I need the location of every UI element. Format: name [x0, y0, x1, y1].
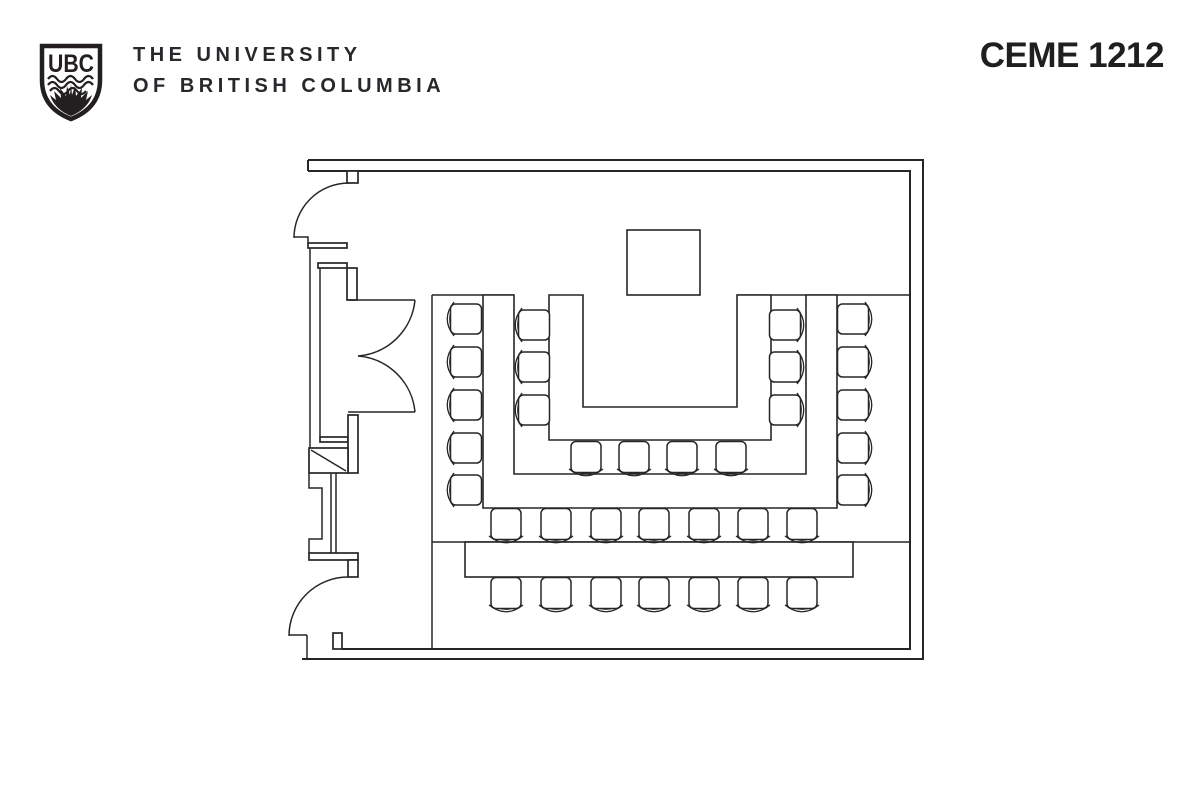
furniture-layer	[447, 230, 872, 612]
door-pier	[347, 268, 357, 300]
chair-left-outer-column	[447, 302, 481, 336]
chair-seat	[519, 310, 550, 340]
chair-back-row	[539, 578, 573, 612]
chair-middle-row	[637, 509, 671, 543]
chair-seat	[838, 433, 869, 463]
chair-back-row	[785, 578, 819, 612]
alcove-walls	[310, 248, 320, 448]
door-pier	[348, 560, 358, 577]
chair-seat	[838, 304, 869, 334]
chair-seat	[541, 578, 571, 609]
chair-right-inner-column	[770, 308, 804, 342]
wall-stub	[333, 633, 342, 649]
chair-seat	[451, 347, 482, 377]
chair-seat	[787, 509, 817, 540]
chair-left-outer-column	[447, 345, 481, 379]
chair-middle-row	[539, 509, 573, 543]
chair-seat	[541, 509, 571, 540]
chair-seat	[451, 475, 482, 505]
chair-seat	[838, 475, 869, 505]
podium	[627, 230, 700, 295]
chair-seat	[838, 390, 869, 420]
back-table	[465, 542, 853, 577]
inner-u-table	[549, 295, 771, 440]
chair-seat	[770, 352, 801, 382]
chair-seat	[639, 509, 669, 540]
floorplan-drawing	[0, 0, 1200, 800]
chair-left-outer-column	[447, 431, 481, 465]
chair-seat	[519, 395, 550, 425]
stepped-wall	[309, 473, 336, 553]
chair-middle-row	[589, 509, 623, 543]
chair-seat	[591, 509, 621, 540]
chair-seat	[689, 578, 719, 609]
chair-inner-bottom-row	[617, 442, 651, 476]
door-pier	[348, 415, 358, 473]
chair-right-outer-column	[838, 473, 872, 507]
chair-seat	[571, 442, 601, 473]
left-wall-and-doors	[289, 171, 415, 659]
chair-seat	[787, 578, 817, 609]
chair-back-row	[637, 578, 671, 612]
chair-seat	[519, 352, 550, 382]
chair-right-inner-column	[770, 393, 804, 427]
chair-seat	[770, 310, 801, 340]
chair-right-outer-column	[838, 345, 872, 379]
chair-seat	[667, 442, 697, 473]
chair-left-outer-column	[447, 388, 481, 422]
chair-back-row	[489, 578, 523, 612]
door-top-left-swing	[294, 183, 349, 243]
wall-plate	[308, 243, 347, 248]
chair-inner-bottom-row	[569, 442, 603, 476]
chair-seat	[689, 509, 719, 540]
wall-plate	[318, 263, 347, 268]
chair-seat	[639, 578, 669, 609]
chair-seat	[738, 509, 768, 540]
chair-middle-row	[785, 509, 819, 543]
chair-left-inner-column	[515, 393, 549, 427]
chair-seat	[591, 578, 621, 609]
chair-seat	[738, 578, 768, 609]
chair-seat	[716, 442, 746, 473]
chair-right-outer-column	[838, 302, 872, 336]
chair-inner-bottom-row	[714, 442, 748, 476]
chair-right-outer-column	[838, 431, 872, 465]
chair-seat	[491, 578, 521, 609]
chair-seat	[619, 442, 649, 473]
chair-middle-row	[736, 509, 770, 543]
double-door-left	[348, 300, 415, 412]
door-header	[309, 553, 358, 560]
chair-seat	[451, 390, 482, 420]
chair-back-row	[687, 578, 721, 612]
chair-middle-row	[489, 509, 523, 543]
chair-back-row	[736, 578, 770, 612]
chair-inner-bottom-row	[665, 442, 699, 476]
chair-right-inner-column	[770, 350, 804, 384]
page: UBC THE UNIVERSITYOF BRITISH COLUMBIA CE…	[0, 0, 1200, 800]
chair-left-outer-column	[447, 473, 481, 507]
chair-middle-row	[687, 509, 721, 543]
chair-left-inner-column	[515, 308, 549, 342]
door-jamb	[347, 171, 358, 183]
chair-seat	[770, 395, 801, 425]
chair-right-outer-column	[838, 388, 872, 422]
chair-left-inner-column	[515, 350, 549, 384]
chair-back-row	[589, 578, 623, 612]
chair-seat	[451, 304, 482, 334]
alcove-bottom-cap	[320, 437, 348, 442]
chair-seat	[451, 433, 482, 463]
chair-seat	[838, 347, 869, 377]
chair-seat	[491, 509, 521, 540]
